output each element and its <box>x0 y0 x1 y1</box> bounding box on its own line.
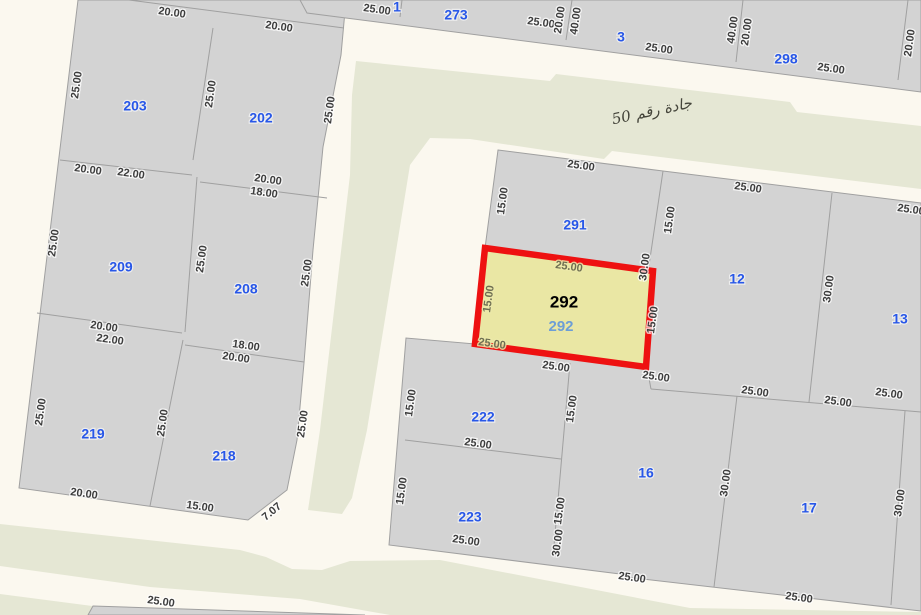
parcel-number-label[interactable]: 16 <box>638 465 654 481</box>
parcel-number-label[interactable]: 13 <box>892 311 908 327</box>
parcel-number-label[interactable]: 273 <box>444 7 468 23</box>
cadastral-map-viewport[interactable]: 20.0020.0025.0025.0020.0040.0025.0040.00… <box>0 0 921 615</box>
parcel-number-label[interactable]: 222 <box>471 409 495 425</box>
parcel-number-label[interactable]: 3 <box>617 29 625 45</box>
parcel-number-label[interactable]: 12 <box>729 271 745 287</box>
parcel-number-label[interactable]: 223 <box>458 509 482 525</box>
parcel-number-label[interactable]: 291 <box>563 217 587 233</box>
parcel-map-svg[interactable]: 20.0020.0025.0025.0020.0040.0025.0040.00… <box>0 0 921 615</box>
parcel-number-label[interactable]: 1 <box>393 0 401 15</box>
parcel-number-label[interactable]: 218 <box>212 448 236 464</box>
parcel-number-label[interactable]: 209 <box>109 259 133 275</box>
parcel-number-label[interactable]: 17 <box>801 500 817 516</box>
parcel-number-label[interactable]: 219 <box>81 426 105 442</box>
parcel-number-label[interactable]: 202 <box>249 110 273 126</box>
selected-parcel-number: 292 <box>550 292 578 311</box>
selected-parcel-subnumber: 292 <box>548 318 573 335</box>
parcel-number-label[interactable]: 298 <box>774 51 798 67</box>
parcel-number-label[interactable]: 203 <box>123 98 147 114</box>
parcel-number-label[interactable]: 208 <box>234 281 258 297</box>
